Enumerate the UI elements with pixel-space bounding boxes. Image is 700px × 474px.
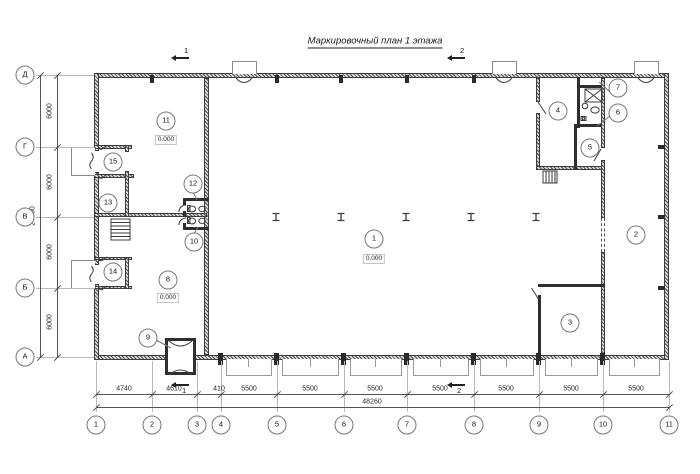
elevation-label: 0.000 [157,293,179,303]
door-arc [496,78,512,83]
section-mark-arrow [447,382,452,388]
col-axis-bubble: 5 [268,416,287,435]
section-label: 2 [460,46,464,55]
dim-line [40,75,41,357]
axis-line-col [344,361,345,412]
wall-break [98,175,110,179]
sink-fixture [581,103,599,120]
wall-break [98,286,110,290]
wall-break [98,146,110,150]
column-symbol [273,214,540,221]
section-mark-line [176,57,189,59]
room-bubble-12: 12 [184,175,203,194]
section-label: 2 [457,386,461,395]
col-axis-bubble: 2 [143,416,162,435]
section-label: 1 [184,46,188,55]
room-bubble-7: 7 [609,79,628,98]
door-leaf [538,102,546,114]
dim-label: 5500 [432,386,448,393]
dim-label: 4740 [116,386,132,393]
axis-line-row [36,147,94,148]
stairs [111,219,130,240]
door-arc [236,78,252,83]
axis-line-row [36,217,94,218]
section-label: 1 [182,386,186,395]
door-arc [179,205,186,212]
axis-line-col [277,361,278,412]
col-axis-bubble: 4 [212,416,231,435]
dim-label: 5500 [498,386,514,393]
dim-label: 6000 [47,103,54,119]
room-bubble-4: 4 [549,102,568,121]
col-axis-bubble: 3 [188,416,207,435]
door-arc [179,218,186,225]
door-arc [169,370,192,375]
toilet-fixture [188,206,206,224]
axis-line-col [539,361,540,412]
room-bubble-8: 8 [159,271,178,290]
axis-line-row [36,288,94,289]
wall-break [90,153,94,169]
floor-plan-canvas: Маркировочный план 1 этажа [0,0,700,474]
axis-line-col [96,361,97,412]
room-bubble-5: 5 [581,139,600,158]
leader-line [156,82,610,348]
room-bubble-10: 10 [185,233,204,252]
room-bubble-14: 14 [104,263,123,282]
col-axis-bubble: 9 [530,416,549,435]
door-arc [169,341,192,346]
plan-linework [0,0,700,474]
room-bubble-11: 11 [157,112,176,131]
dim-label: 6000 [47,314,54,330]
axis-line-col [197,361,198,412]
dim-label: 5500 [302,386,318,393]
col-axis-bubble: 10 [594,416,613,435]
col-axis-bubble: 7 [398,416,417,435]
axis-line-col [669,361,670,412]
dim-label: 5500 [628,386,644,393]
shower-box [585,89,602,102]
room-bubble-13: 13 [99,194,118,213]
dim-label-total: 48260 [362,399,381,406]
row-axis-bubble: Д [16,66,35,85]
room-bubble-6: 6 [609,104,628,123]
room-bubble-9: 9 [139,329,158,348]
dim-line [96,407,669,408]
section-mark-arrow [171,382,176,388]
axis-line-row [36,357,94,358]
dim-label: 5500 [241,386,257,393]
axis-line-row [36,75,94,76]
axis-line-col [152,361,153,412]
dim-label: 410 [213,386,225,393]
dim-label: 6000 [47,174,54,190]
row-axis-bubble: В [16,208,35,227]
axis-line-col [603,361,604,412]
dim-label: 5500 [563,386,579,393]
row-axis-bubble: А [16,348,35,367]
door-leaf [532,288,539,299]
room-bubble-2: 2 [627,226,646,245]
dim-label: 5500 [367,386,383,393]
section-mark-arrow [447,55,452,61]
room-bubble-3: 3 [561,314,580,333]
axis-line-col [474,361,475,412]
col-axis-bubble: 8 [465,416,484,435]
wall-break [98,257,110,261]
col-axis-bubble: 6 [335,416,354,435]
dim-label: 6000 [47,244,54,260]
col-axis-bubble: 1 [87,416,106,435]
room-bubble-1: 1 [365,230,384,249]
section-mark-line [452,57,465,59]
elevation-label: 0.000 [363,254,385,264]
room-bubble-15: 15 [104,153,123,172]
door-arc [638,78,654,83]
row-axis-bubble: Б [16,279,35,298]
axis-line-col [407,361,408,412]
elevation-label: 0.000 [155,135,177,145]
section-mark-arrow [171,55,176,61]
col-axis-bubble: 11 [660,416,679,435]
stairs [543,171,557,183]
wall-break [90,266,94,282]
row-axis-bubble: Г [16,138,35,157]
